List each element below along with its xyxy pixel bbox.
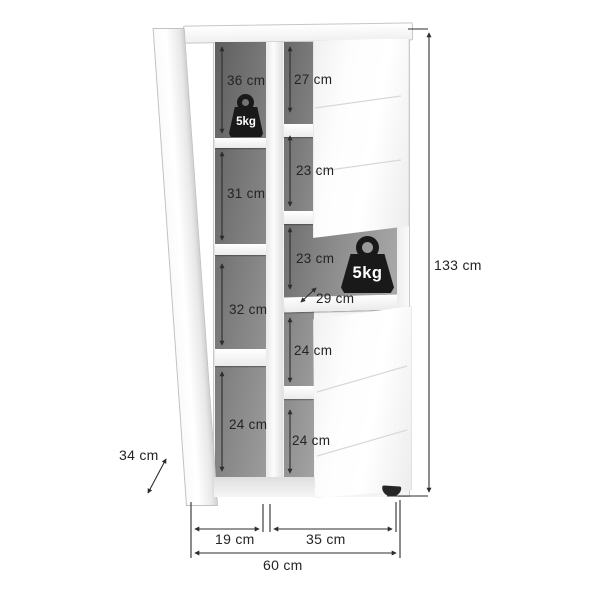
- label-width-60cm: 60 cm: [263, 558, 303, 572]
- middle-shelf-1: [284, 124, 314, 137]
- label-left-24cm: 24 cm: [229, 418, 267, 432]
- middle-shelf-2: [284, 211, 314, 224]
- dim-line-34cm-depth: [148, 459, 166, 493]
- label-left-31cm: 31 cm: [227, 187, 265, 201]
- left-shelf-2: [215, 244, 266, 255]
- max-load-badge-small: 5kg: [229, 94, 263, 138]
- max-load-badge-large: 5kg: [341, 236, 394, 294]
- label-mid-24cm-b: 24 cm: [292, 434, 330, 448]
- right-side-panel: [397, 224, 409, 310]
- label-height-133cm: 133 cm: [434, 258, 482, 272]
- label-width-35cm: 35 cm: [306, 532, 346, 546]
- label-shelf-depth-29cm: 29 cm: [316, 292, 354, 306]
- product-dimension-diagram: 5kg 5kg: [0, 0, 600, 600]
- label-mid-24cm-a: 24 cm: [294, 344, 332, 358]
- left-shelf-1: [215, 138, 266, 148]
- weight-icon: 5kg: [229, 107, 263, 137]
- label-mid-23cm-a: 23 cm: [296, 164, 334, 178]
- center-divider-panel: [266, 42, 283, 477]
- label-mid-27cm: 27 cm: [294, 73, 332, 87]
- label-left-32cm: 32 cm: [229, 303, 267, 317]
- upper-right-door: [313, 38, 409, 238]
- label-left-36cm: 36 cm: [227, 74, 265, 88]
- middle-shelf-4: [284, 386, 314, 399]
- label-width-19cm: 19 cm: [215, 532, 255, 546]
- left-door-open: [153, 28, 218, 506]
- weight-icon: 5kg: [341, 254, 394, 293]
- label-mid-23cm-b: 23 cm: [296, 252, 334, 266]
- label-depth-34cm: 34 cm: [119, 448, 159, 462]
- lower-right-door: [313, 306, 412, 498]
- left-shelf-3: [215, 349, 266, 366]
